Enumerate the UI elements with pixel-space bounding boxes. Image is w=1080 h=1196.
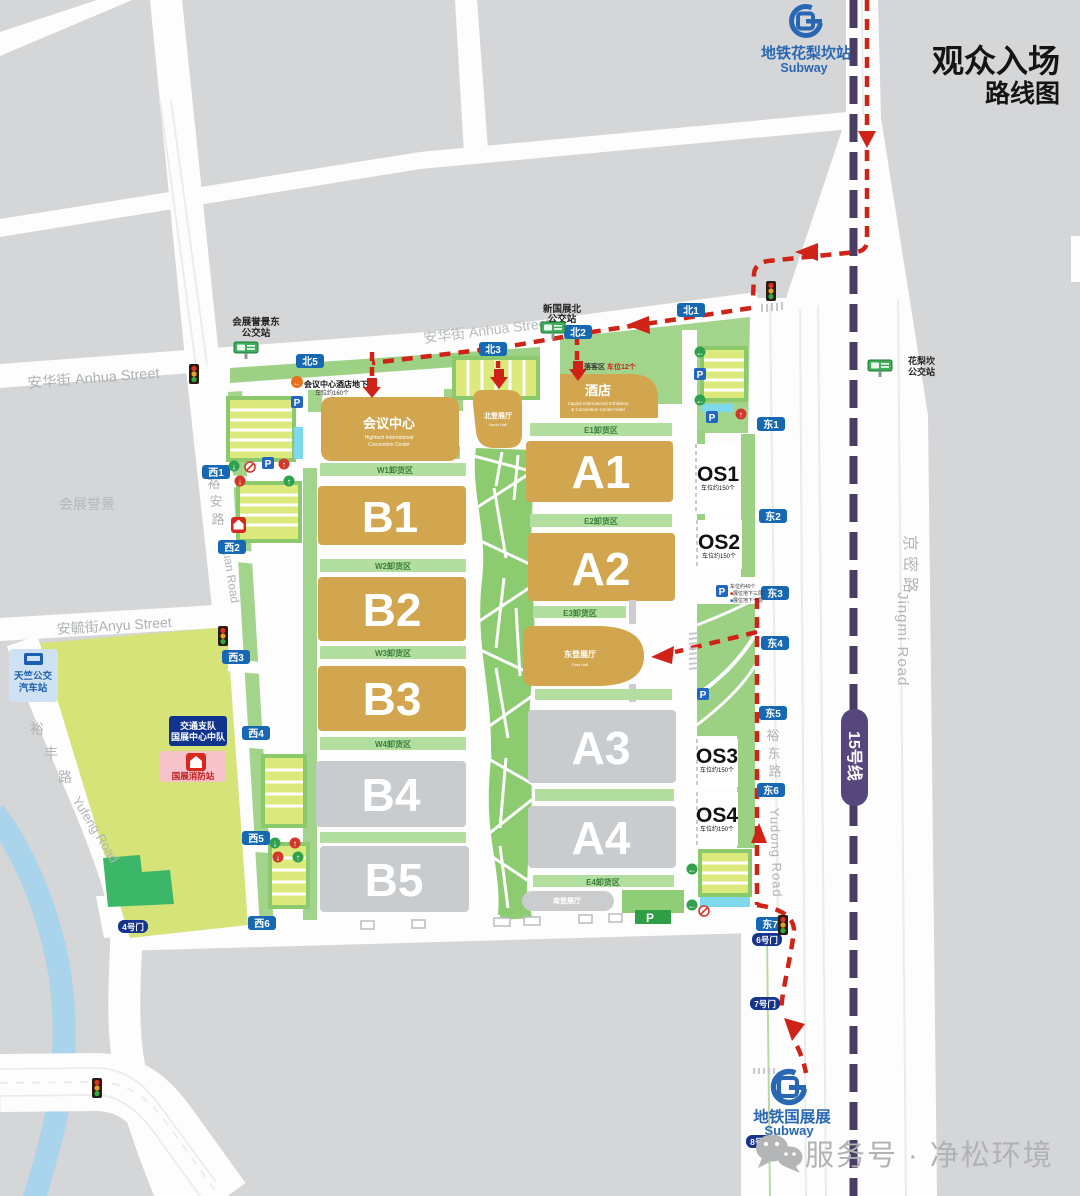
svg-text:车位约40个: 车位约40个 [730, 583, 756, 590]
svg-text:西2: 西2 [224, 542, 240, 554]
svg-text:北登展厅: 北登展厅 [484, 411, 512, 420]
svg-text:& Convention Center Hotel: & Convention Center Hotel [571, 407, 625, 412]
svg-text:东2: 东2 [765, 510, 781, 523]
svg-text:北5: 北5 [302, 355, 318, 368]
svg-text:Capital International Exhibiti: Capital International Exhibition [568, 401, 629, 406]
svg-text:P: P [646, 911, 654, 925]
svg-text:汽车站: 汽车站 [19, 682, 48, 694]
svg-text:B4: B4 [362, 769, 421, 821]
svg-text:B5: B5 [365, 854, 424, 906]
svg-text:东3: 东3 [767, 587, 783, 600]
svg-text:会议中心: 会议中心 [363, 416, 415, 431]
svg-text:Jingmi Road: Jingmi Road [894, 592, 911, 686]
svg-text:安: 安 [209, 494, 222, 509]
svg-text:北2: 北2 [570, 326, 586, 339]
svg-text:北3: 北3 [485, 343, 501, 356]
svg-text:西3: 西3 [228, 652, 244, 664]
svg-text:会展誉景: 会展誉景 [59, 496, 115, 512]
svg-text:Subway: Subway [780, 61, 827, 75]
svg-text:丰: 丰 [44, 745, 58, 761]
svg-text:东登展厅: 东登展厅 [564, 649, 596, 659]
svg-text:E2卸货区: E2卸货区 [584, 516, 618, 526]
svg-text:观众入场: 观众入场 [932, 43, 1060, 79]
svg-text:W2卸货区: W2卸货区 [375, 561, 411, 571]
svg-text:W1卸货区: W1卸货区 [377, 465, 413, 475]
svg-text:OS4: OS4 [696, 804, 738, 827]
svg-text:B2: B2 [363, 584, 422, 636]
svg-text:花梨坎: 花梨坎 [908, 355, 936, 366]
svg-text:西6: 西6 [254, 918, 270, 930]
svg-text:4号门: 4号门 [122, 922, 144, 932]
svg-text:路线图: 路线图 [985, 79, 1060, 108]
svg-text:裕: 裕 [766, 728, 779, 743]
svg-text:车位约150个: 车位约150个 [700, 766, 734, 774]
svg-text:京密路: 京密路 [901, 535, 919, 598]
svg-text:Hightech International: Hightech International [365, 435, 414, 441]
svg-text:服务号 · 净松环境: 服务号 · 净松环境 [805, 1139, 1054, 1172]
svg-text:西5: 西5 [248, 833, 264, 845]
svg-text:东4: 东4 [767, 637, 783, 650]
svg-text:←: ← [293, 379, 301, 388]
svg-text:East Hall: East Hall [572, 662, 588, 667]
svg-text:路: 路 [58, 769, 72, 785]
svg-text:天竺公交: 天竺公交 [14, 670, 53, 682]
svg-text:公交站: 公交站 [908, 366, 935, 377]
svg-text:7号门: 7号门 [754, 999, 776, 1009]
svg-text:A2: A2 [572, 543, 631, 595]
svg-text:OS3: OS3 [696, 745, 738, 768]
svg-text:酒店: 酒店 [585, 383, 611, 398]
svg-text:会展誉景东: 会展誉景东 [232, 316, 280, 328]
svg-text:E1卸货区: E1卸货区 [584, 425, 618, 435]
svg-text:A3: A3 [572, 722, 631, 774]
svg-text:车位约150个: 车位约150个 [700, 825, 734, 833]
svg-text:路: 路 [211, 512, 224, 527]
svg-text:Yudong Road: Yudong Road [767, 808, 785, 898]
svg-text:B1: B1 [362, 493, 418, 542]
svg-text:OS1: OS1 [697, 463, 739, 486]
svg-text:A4: A4 [572, 812, 631, 864]
svg-text:路: 路 [768, 764, 781, 779]
svg-text:车位约150个: 车位约150个 [702, 552, 736, 560]
svg-text:车位约160个: 车位约160个 [315, 389, 349, 397]
svg-text:裕: 裕 [30, 721, 44, 737]
svg-text:西4: 西4 [248, 728, 264, 740]
svg-text:地铁花梨坎站: 地铁花梨坎站 [761, 44, 851, 62]
svg-text:东1: 东1 [763, 418, 779, 431]
svg-text:东7: 东7 [762, 918, 778, 931]
svg-text:15号线: 15号线 [845, 731, 864, 781]
svg-text:北1: 北1 [683, 304, 699, 317]
svg-text:6号门: 6号门 [756, 935, 778, 945]
svg-text:车位约150个: 车位约150个 [701, 484, 735, 492]
svg-text:南登展厅: 南登展厅 [553, 896, 581, 905]
svg-text:E4卸货区: E4卸货区 [586, 877, 620, 887]
svg-text:Convention Center: Convention Center [368, 442, 410, 448]
svg-text:North Hall: North Hall [489, 422, 507, 427]
svg-text:A1: A1 [572, 446, 631, 498]
svg-text:东: 东 [767, 746, 780, 761]
svg-text:■展位地下三层: ■展位地下三层 [730, 590, 763, 597]
svg-text:东5: 东5 [765, 707, 781, 720]
svg-text:交通支队: 交通支队 [180, 720, 217, 731]
svg-text:公交站: 公交站 [242, 327, 271, 339]
svg-text:东6: 东6 [763, 784, 779, 797]
svg-text:西1: 西1 [208, 467, 224, 479]
svg-text:国展中心中队: 国展中心中队 [171, 731, 226, 742]
svg-text:国展消防站: 国展消防站 [172, 771, 215, 781]
svg-text:会议中心酒店地下: 会议中心酒店地下 [304, 379, 368, 389]
svg-text:W4卸货区: W4卸货区 [375, 739, 411, 749]
svg-text:■展位地下一层: ■展位地下一层 [730, 597, 763, 604]
svg-text:落客区 车位12个: 落客区 车位12个 [584, 362, 637, 371]
svg-text:E3卸货区: E3卸货区 [563, 608, 597, 618]
svg-text:OS2: OS2 [698, 531, 740, 554]
svg-text:B3: B3 [363, 673, 422, 725]
svg-text:W3卸货区: W3卸货区 [375, 648, 411, 658]
